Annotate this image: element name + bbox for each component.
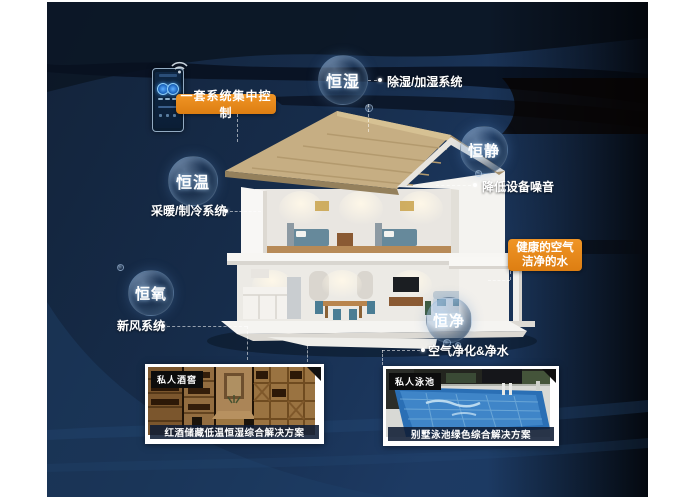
bubble-label: 恒湿 xyxy=(326,68,360,92)
pool-tag: 私人泳池 xyxy=(389,373,441,390)
note-bullet xyxy=(378,78,382,82)
connector-health-h xyxy=(488,280,510,281)
mini-bubble xyxy=(117,264,124,271)
connector-oxygen-h xyxy=(167,326,247,327)
pool-photo: 私人泳池 别墅泳池绿色综合解决方案 xyxy=(386,369,556,443)
wine-cellar-caption: 红酒储藏低温恒湿综合解决方案 xyxy=(150,425,319,439)
bubble-constant-clean: 恒净 xyxy=(426,297,472,343)
healthy-air-line1: 健康的空气 xyxy=(516,241,574,255)
wifi-icon xyxy=(170,59,189,74)
mini-bubble xyxy=(475,170,482,177)
connector-quiet xyxy=(436,185,471,186)
note-bullet xyxy=(224,209,228,213)
bubble-label: 恒氧 xyxy=(135,283,167,304)
connector-clean-h xyxy=(382,350,420,351)
phone-screen-header xyxy=(159,74,177,77)
phone-menu-icon xyxy=(159,114,162,117)
bubble-label: 恒净 xyxy=(433,310,465,331)
infographic-page: 一套系统集中控制 恒湿 除湿/加湿系统 恒静 降低设备噪音 恒温 采暖/制冷系统… xyxy=(0,0,700,497)
bubble-label: 恒温 xyxy=(176,169,210,193)
central-control-label: 一套系统集中控制 xyxy=(176,87,276,121)
connector-house-to-cellar xyxy=(307,346,308,362)
phone-stat-row xyxy=(158,98,163,100)
bubble-constant-oxygen: 恒氧 xyxy=(128,270,174,316)
central-control-badge: 一套系统集中控制 xyxy=(176,94,276,114)
connector-clean-v xyxy=(382,350,383,365)
card-fold-corner xyxy=(307,367,321,381)
connector-humidity xyxy=(368,80,377,81)
note-oxygen: 新风系统 xyxy=(117,317,165,334)
smart-home-diagram: 一套系统集中控制 恒湿 除湿/加湿系统 恒静 降低设备噪音 恒温 采暖/制冷系统… xyxy=(47,2,648,497)
connector-humidity-to-house xyxy=(368,104,369,132)
note-bullet xyxy=(473,183,477,187)
bubble-constant-humidity: 恒湿 xyxy=(318,55,368,105)
bubble-constant-temperature: 恒温 xyxy=(168,156,218,206)
note-temperature: 采暖/制冷系统 xyxy=(151,202,226,219)
pool-caption: 别墅泳池绿色综合解决方案 xyxy=(388,427,554,441)
phone-stat-row xyxy=(165,98,170,100)
phone-menu-icon xyxy=(166,114,169,117)
wine-cellar-photo: 私人酒窖 红酒储藏低温恒湿综合解决方案 xyxy=(148,367,321,441)
wine-cellar-card: 私人酒窖 红酒储藏低温恒湿综合解决方案 xyxy=(145,364,324,444)
note-clean: 空气净化&净水 xyxy=(428,342,509,359)
wine-cellar-tag: 私人酒窖 xyxy=(151,371,203,388)
connector-health-v xyxy=(510,271,511,280)
phone-divider xyxy=(158,106,177,108)
bubble-label: 恒静 xyxy=(468,140,500,161)
note-quiet: 降低设备噪音 xyxy=(482,178,554,195)
connector-temperature xyxy=(230,211,261,212)
connector-oxygen-v xyxy=(247,326,248,360)
mini-bubble xyxy=(365,104,373,112)
healthy-air-line2: 洁净的水 xyxy=(522,255,568,269)
note-bullet xyxy=(161,324,165,328)
note-bullet xyxy=(421,348,425,352)
connector-badge-to-house xyxy=(237,114,238,142)
healthy-air-badge: 健康的空气 洁净的水 xyxy=(508,239,582,271)
pool-card: 私人泳池 别墅泳池绿色综合解决方案 xyxy=(383,366,559,446)
card-fold-corner xyxy=(542,369,556,383)
bubble-constant-quiet: 恒静 xyxy=(460,126,508,174)
note-humidity: 除湿/加湿系统 xyxy=(387,73,462,90)
